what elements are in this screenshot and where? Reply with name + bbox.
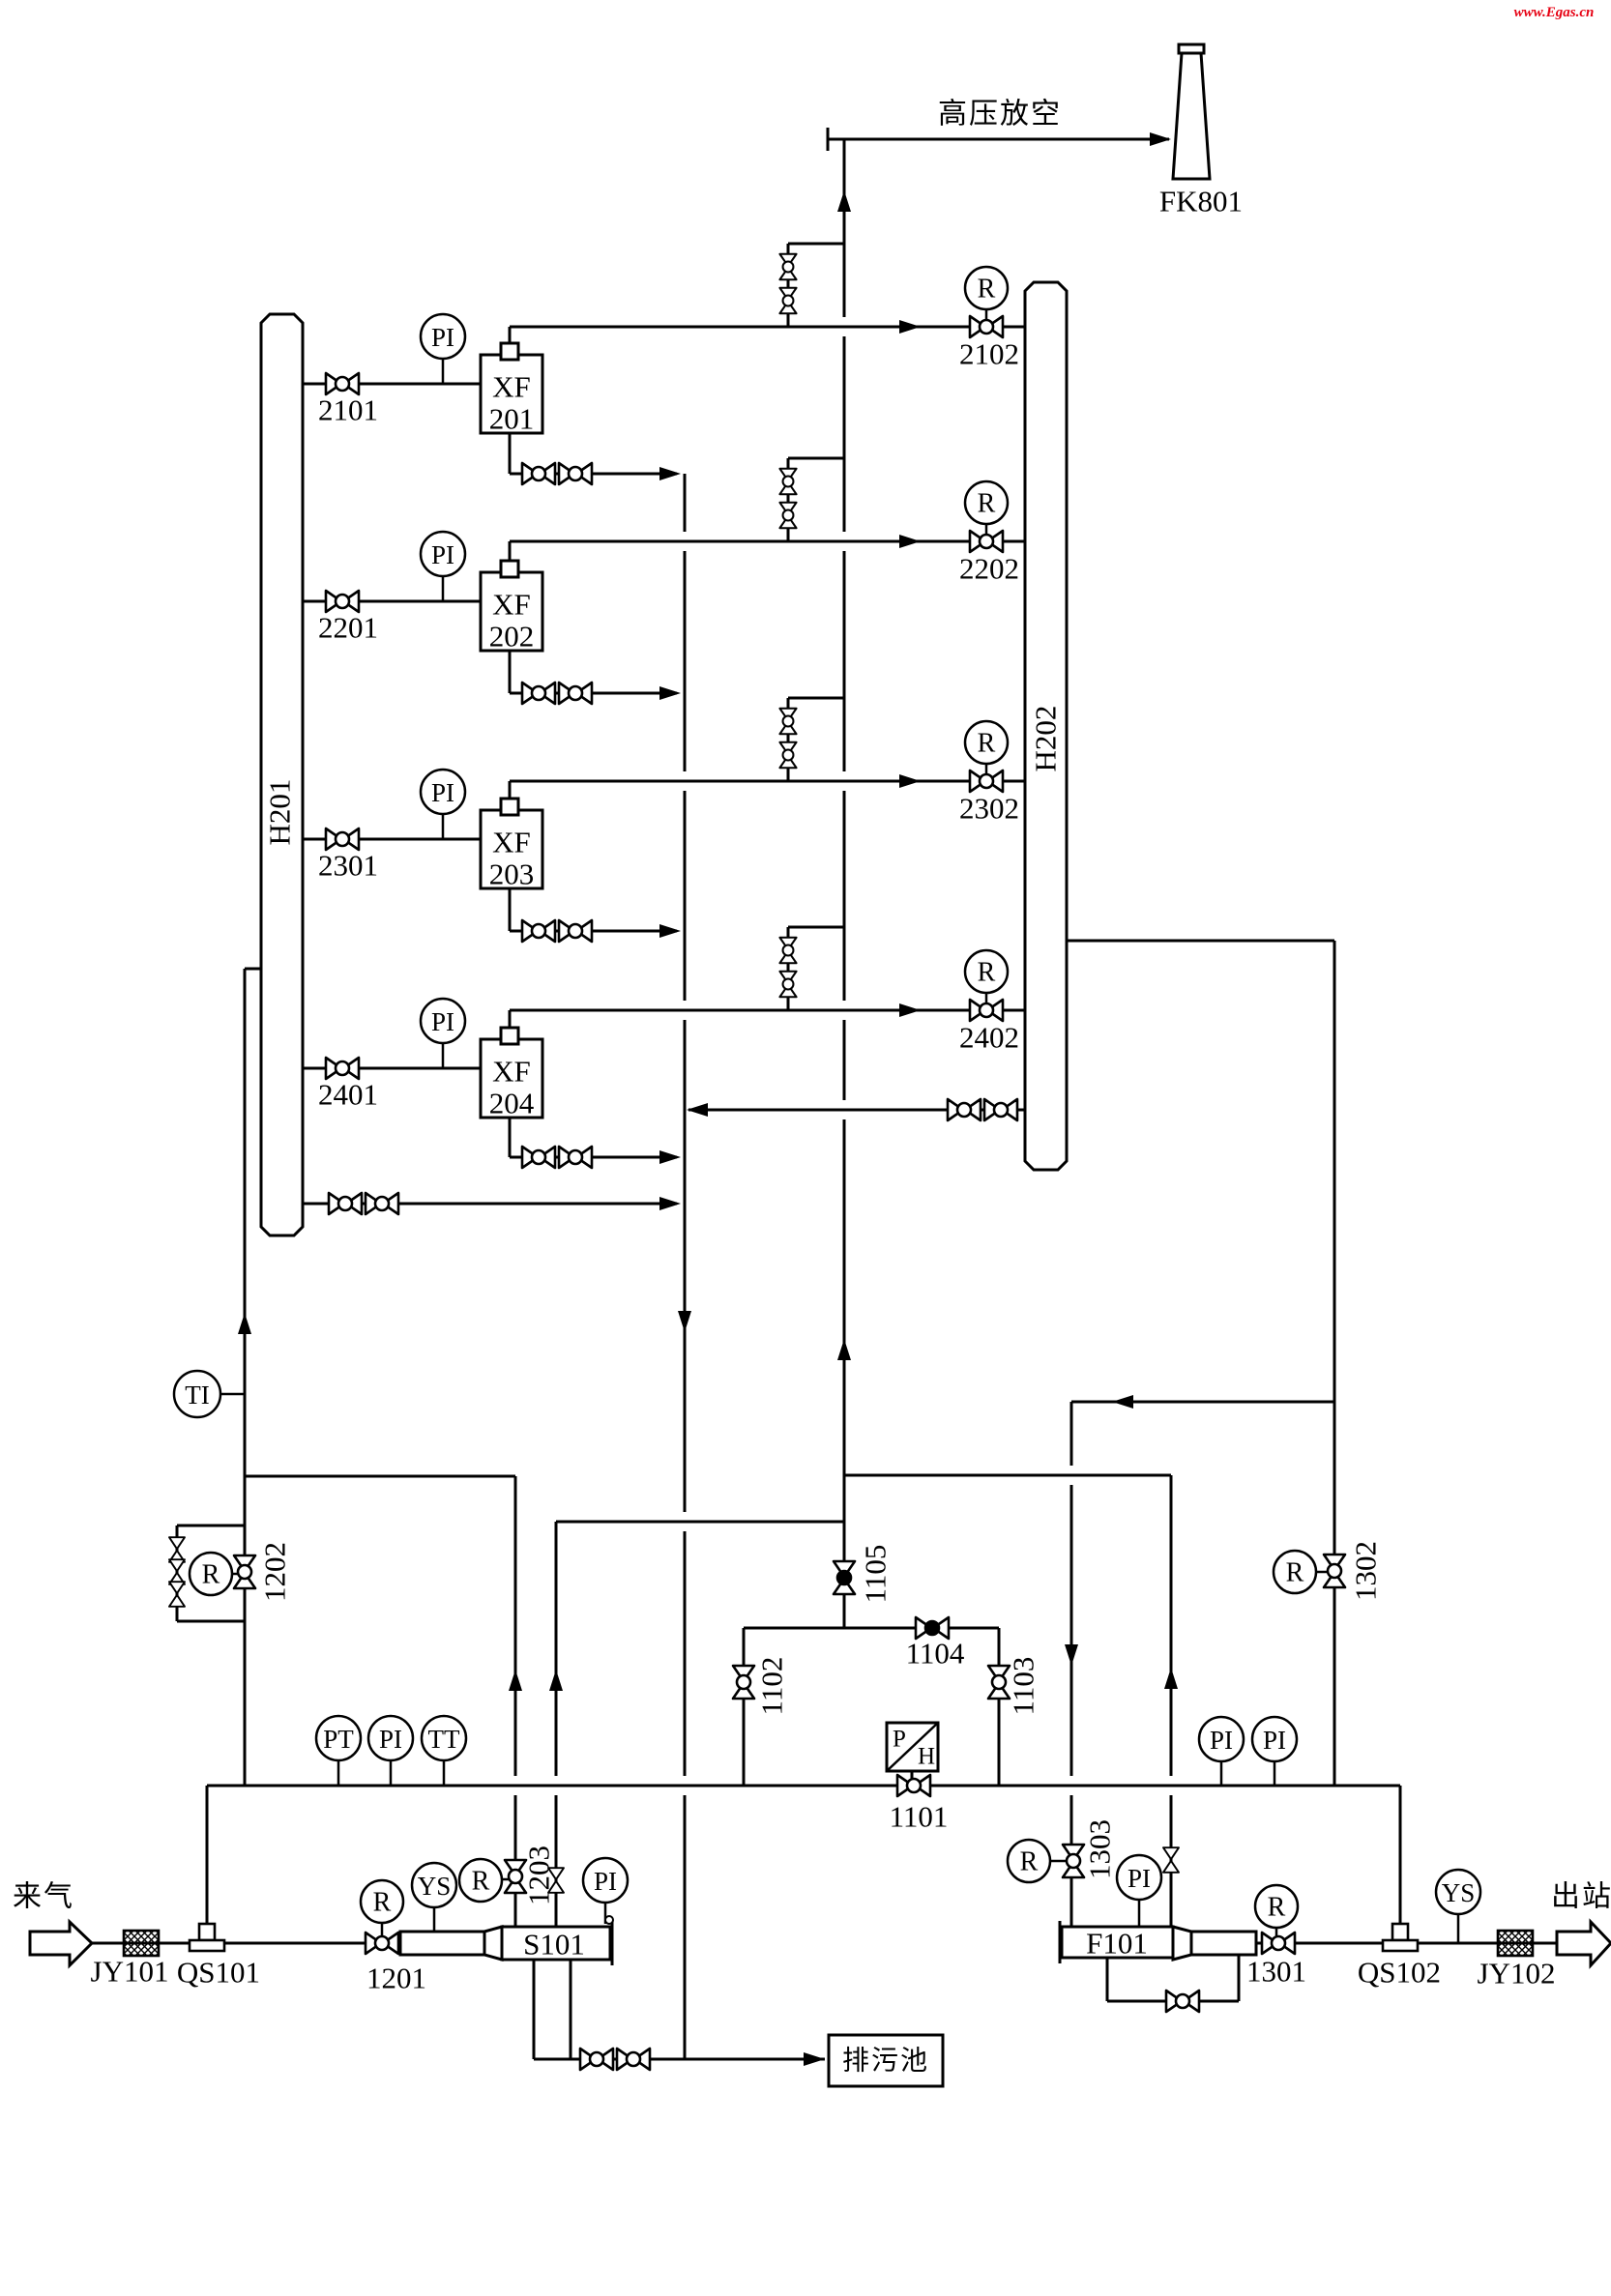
valve-2401 [326,1058,359,1079]
inlet-label: 来气 [13,1881,74,1913]
gauge-ys-outlet: YS [1436,1870,1480,1914]
block-valve [522,920,555,942]
svg-text:TI: TI [185,1381,209,1410]
analyzer-p-label: P [893,1727,906,1753]
block-valve [329,1193,362,1214]
gauge-pi-f101: PI [1117,1855,1161,1900]
instrument-stems [220,309,1458,1943]
block-valve [984,1099,1017,1120]
heater-xf202-prefix: XF [492,588,531,622]
fitting-qs101 [190,1924,224,1951]
valve-1201 [366,1933,398,1954]
valve-1301-label: 1301 [1246,1955,1306,1989]
block-valve [617,2049,650,2070]
insulating-joint-jy102 [1498,1931,1533,1956]
valve-2102-label: 2102 [959,337,1019,371]
heater-xf201-num: 201 [489,402,535,436]
gauge-pt-header: PT [316,1716,361,1760]
svg-text:R: R [373,1888,392,1918]
block-valve [522,1147,555,1168]
heater-xf203-prefix: XF [492,826,531,859]
filter-bypass-valve [1166,1991,1199,2012]
block-valve [522,683,555,704]
inlet-flow-arrow [30,1922,92,1965]
svg-text:PT: PT [323,1725,354,1754]
valve-1201-label: 1201 [366,1962,426,1995]
heater-xf201-prefix: XF [492,370,531,404]
relief-valve [779,709,796,735]
valve-1105-label: 1105 [859,1545,893,1604]
heater-xf204-num: 204 [489,1087,535,1120]
svg-text:PI: PI [431,323,454,352]
vessel-h201-label: H201 [263,779,297,846]
jy101-label: JY101 [91,1955,169,1989]
regulator-r-run4: R [965,950,1008,993]
svg-text:R: R [978,958,996,988]
block-valve [559,683,592,704]
valve-1101-label: 1101 [890,1800,949,1834]
svg-text:PI: PI [1263,1726,1286,1755]
heater-xf203-num: 203 [489,857,535,891]
valve-2401-label: 2401 [318,1078,378,1112]
block-valve [559,920,592,942]
vent-header-label: 高压放空 [938,99,1062,131]
block-valve [948,1099,981,1120]
svg-text:R: R [978,489,996,519]
relief-valve [779,469,796,495]
heater-xf201: XF 201 [481,343,542,436]
drain-pool-label: 排污池 [842,2046,929,2077]
gauge-pi-run1: PI [421,314,465,359]
vessel-s101-label: S101 [523,1928,585,1962]
relief-valve [779,503,796,529]
regulator-r-1203: R [459,1859,502,1902]
valve-1105 [834,1561,855,1594]
relief-valve [779,742,796,769]
svg-text:PI: PI [1128,1864,1151,1893]
bypass-valve [169,1537,185,1562]
valves [169,254,1345,2070]
gauge-pi-header: PI [368,1716,413,1760]
gauge-pi-s101: PI [583,1858,628,1903]
valve-2302-label: 2302 [959,792,1019,826]
fitting-qs102 [1383,1924,1418,1951]
valve-1104-label: 1104 [906,1637,965,1671]
svg-text:PI: PI [1210,1726,1233,1755]
valve-2201-label: 2201 [318,611,378,645]
valve-2102 [970,316,1003,337]
svg-text:TT: TT [428,1725,460,1754]
regulator-r-run1: R [965,267,1008,309]
valve-2302 [970,770,1003,792]
valve-2101-label: 2101 [318,393,378,427]
valve-2202 [970,531,1003,552]
relief-valve [779,938,796,964]
valve-1303-label: 1303 [1083,1819,1117,1879]
relief-valve [779,972,796,998]
needle-valve [1163,1847,1179,1873]
regulator-r-run3: R [965,721,1008,764]
gauge-pi-outlet2: PI [1252,1717,1297,1761]
vessel-h202-label: H202 [1029,706,1063,772]
relief-valve [779,288,796,314]
drain-pool: 排污池 [829,2035,943,2086]
qs101-label: QS101 [177,1956,260,1990]
qs102-label: QS102 [1358,1956,1441,1990]
outlet-label: 出站 [1551,1881,1611,1913]
jy102-label: JY102 [1478,1957,1556,1991]
gauge-pi-run3: PI [421,770,465,814]
gauge-ti: TI [174,1371,220,1417]
valve-2202-label: 2202 [959,552,1019,586]
gauge-pi-run4: PI [421,999,465,1043]
valve-1103-label: 1103 [1007,1657,1040,1716]
valve-1102 [733,1666,754,1699]
svg-text:YS: YS [1442,1878,1476,1907]
heater-xf202-num: 202 [489,620,535,654]
heater-xf204-prefix: XF [492,1055,531,1089]
heater-xf202: XF 202 [481,561,542,654]
valve-2101 [326,373,359,394]
svg-text:PI: PI [431,778,454,807]
relief-valve [779,254,796,280]
block-valve [559,463,592,484]
valve-1202 [234,1555,255,1588]
vessel-h201: H201 [261,314,303,1235]
insulating-joint-jy101 [124,1931,159,1956]
gauge-pi-outlet1: PI [1199,1717,1244,1761]
valve-2402-label: 2402 [959,1021,1019,1055]
svg-text:PI: PI [594,1867,617,1896]
valve-1202-label: 1202 [258,1542,292,1602]
block-valve [366,1193,398,1214]
block-valve [522,463,555,484]
block-valve [580,2049,613,2070]
heater-xf204: XF 204 [481,1028,542,1120]
pipe-horizontal-segments [92,139,1557,2059]
svg-text:R: R [472,1867,490,1897]
bypass-valve [169,1559,185,1584]
regulator-r-1303: R [1008,1840,1050,1882]
svg-text:R: R [1286,1558,1304,1588]
gauge-ys-s101: YS [412,1863,456,1907]
pid-page: H201 H202 S101 F101 FK801 排污池 XF 201 [0,0,1611,2296]
valve-1101 [897,1775,930,1796]
svg-text:R: R [978,729,996,759]
valve-1303 [1063,1845,1084,1877]
valve-1203-label: 1203 [522,1846,556,1905]
svg-text:R: R [978,275,996,305]
svg-text:R: R [202,1560,220,1590]
svg-text:PI: PI [379,1725,402,1754]
valve-1301 [1262,1933,1295,1954]
vessel-f101-label: F101 [1086,1927,1148,1961]
svg-text:PI: PI [431,540,454,569]
flare-label: FK801 [1159,185,1243,218]
regulator-r-run2: R [965,481,1008,524]
flare-fk801: FK801 [1159,44,1243,218]
vessel-s101: S101 [400,1916,613,1965]
block-valve [559,1147,592,1168]
valve-2301 [326,828,359,850]
heater-xf203: XF 203 [481,799,542,891]
gauge-pi-run2: PI [421,532,465,576]
analyzer-ph-1101: P H [887,1723,938,1771]
outlet-flow-arrow [1557,1922,1611,1965]
bypass-valve [169,1582,185,1607]
valve-2402 [970,1000,1003,1021]
regulator-r-1301: R [1255,1885,1298,1928]
regulator-r-1201: R [361,1880,403,1923]
vessel-h202: H202 [1025,282,1067,1170]
svg-text:PI: PI [431,1007,454,1036]
labels: 高压放空 来气 出站 2101 2201 2301 2401 2102 2202… [13,99,1611,1995]
vessel-f101: F101 [1060,1921,1256,1963]
svg-text:R: R [1268,1893,1286,1923]
regulator-r-1202: R [190,1553,232,1595]
valve-1302 [1324,1555,1345,1587]
gauge-tt-header: TT [422,1716,466,1760]
svg-text:YS: YS [418,1872,452,1901]
valve-2301-label: 2301 [318,849,378,883]
piping-network [92,128,1557,2066]
pid-diagram: H201 H202 S101 F101 FK801 排污池 XF 201 [0,0,1611,2296]
valve-1102-label: 1102 [755,1657,789,1716]
watermark: www.Egas.cn [1514,5,1595,20]
valve-2201 [326,591,359,612]
valve-1302-label: 1302 [1349,1541,1383,1601]
svg-text:R: R [1020,1847,1039,1877]
analyzer-h-label: H [918,1744,935,1770]
regulator-r-1302: R [1274,1551,1316,1593]
